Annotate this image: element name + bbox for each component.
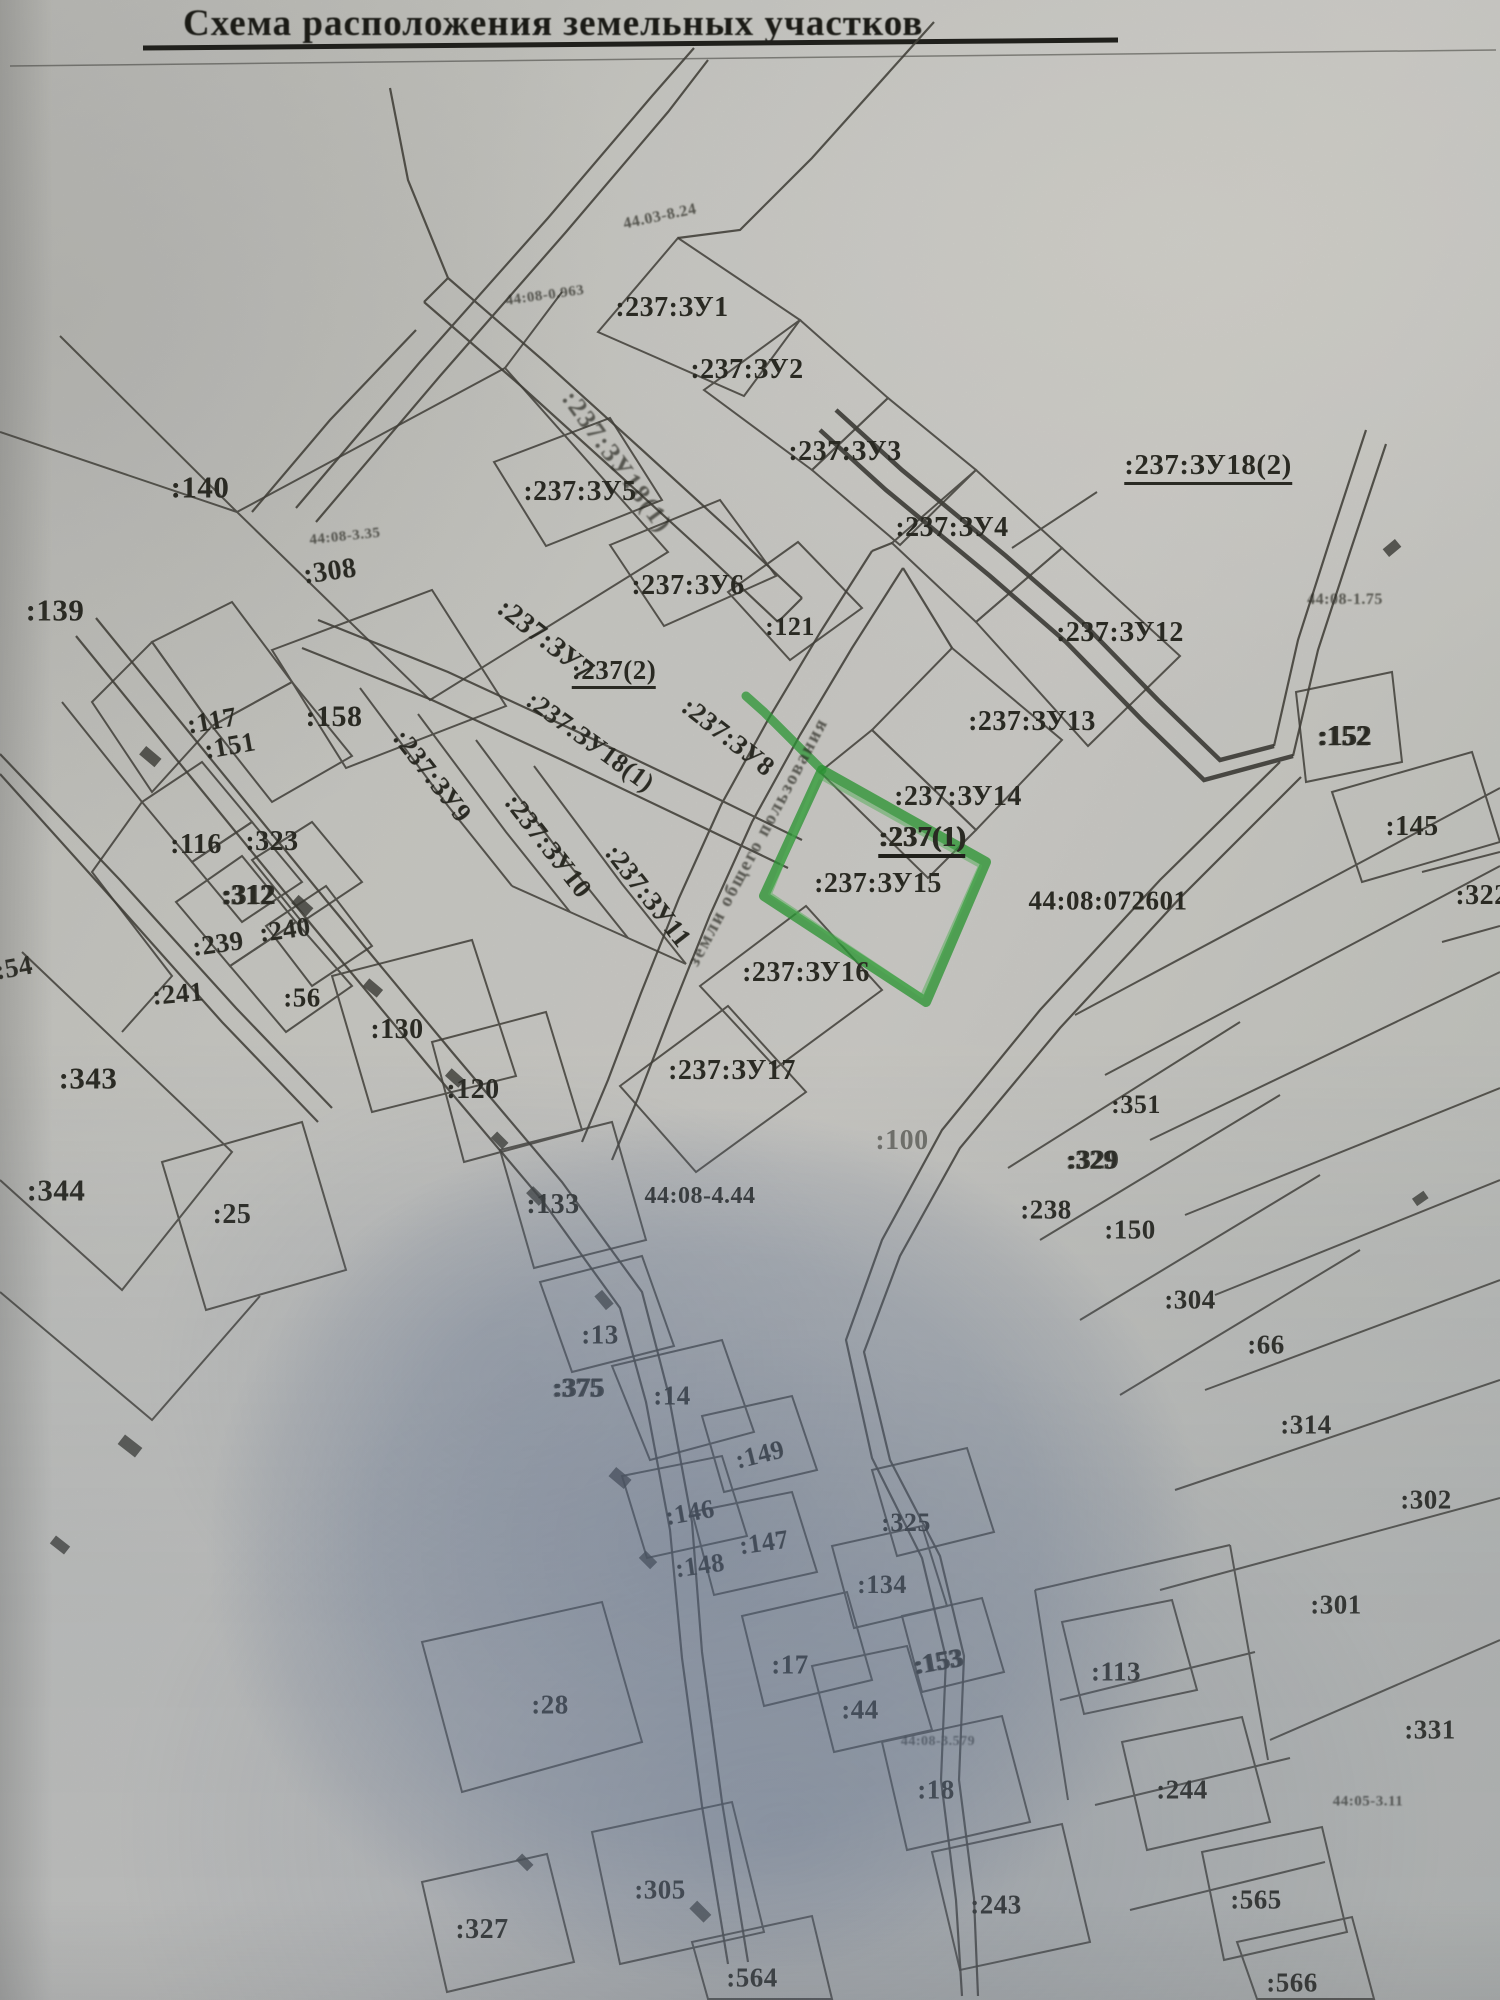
map-labels: 44.03-8.2444:08-0.963:237:ЗУ1:237:ЗУ2:23…	[0, 0, 1500, 2000]
parcel-label: :149	[733, 1436, 787, 1473]
parcel-label: :308	[302, 554, 359, 589]
cadastral-map-photo: Схема расположения земельных участков	[0, 0, 1500, 2000]
parcel-label: :134	[857, 1572, 907, 1598]
parcel-label: 44:08-4.44	[645, 1184, 756, 1208]
parcel-label: :237:ЗУ12	[1056, 619, 1184, 647]
parcel-label: 44:08-0.963	[505, 283, 586, 309]
parcel-label: :237:ЗУ8	[677, 693, 780, 782]
parcel-label: :13	[581, 1322, 619, 1349]
parcel-label: :17	[771, 1652, 809, 1679]
parcel-label: :344	[27, 1175, 86, 1206]
parcel-label: 44:08:072601	[1029, 888, 1188, 915]
parcel-label: :237:ЗУ14	[894, 783, 1022, 811]
parcel-label: :241	[151, 978, 205, 1009]
parcel-label: :54	[0, 951, 35, 984]
parcel-label: :130	[370, 1016, 423, 1044]
parcel-label: :237:ЗУ18(1)	[557, 386, 677, 538]
parcel-label: :237:ЗУ15	[814, 870, 942, 898]
parcel-label: :237:ЗУ3	[788, 438, 901, 466]
parcel-label: :120	[446, 1076, 499, 1104]
parcel-label: :237:ЗУ18(2)	[1124, 451, 1292, 485]
parcel-label: :305	[634, 1877, 686, 1904]
parcel-label: :146	[663, 1496, 716, 1530]
parcel-label: :18	[917, 1777, 955, 1804]
parcel-label: :237:ЗУ1	[615, 294, 728, 322]
parcel-label: :240	[258, 913, 313, 947]
parcel-label: :565	[1230, 1887, 1282, 1914]
parcel-label: :327	[455, 1916, 508, 1944]
parcel-label: :351	[1111, 1092, 1161, 1118]
parcel-label: :239	[191, 927, 246, 961]
parcel-label: :237:ЗУ16	[742, 959, 870, 987]
parcel-label: :28	[531, 1692, 569, 1719]
parcel-label: :237:ЗУ10	[499, 789, 596, 903]
parcel-label: :237(2)	[572, 657, 656, 689]
parcel-label: :237:ЗУ17	[668, 1057, 796, 1085]
parcel-label: :329	[1066, 1147, 1118, 1174]
parcel-label: :25	[213, 1201, 252, 1229]
parcel-label: :145	[1385, 813, 1438, 841]
parcel-label: :343	[59, 1063, 118, 1094]
parcel-label: :237:ЗУ2	[690, 356, 803, 384]
parcel-label: 44:08-3.579	[901, 1735, 975, 1749]
parcel-label: :564	[726, 1965, 778, 1992]
parcel-label: :237:ЗУ6	[631, 572, 744, 600]
parcel-label: :331	[1404, 1717, 1456, 1744]
parcel-label: :152	[1317, 723, 1370, 751]
parcel-label: :237:ЗУ4	[895, 514, 1008, 542]
parcel-label: :375	[552, 1375, 604, 1402]
parcel-label: :151	[202, 728, 257, 764]
parcel-label: :150	[1104, 1217, 1156, 1244]
parcel-label: :147	[738, 1527, 791, 1560]
parcel-label: :323	[245, 828, 298, 856]
parcel-label: :237(1)	[878, 824, 965, 858]
parcel-label: :566	[1266, 1970, 1318, 1997]
parcel-label: :148	[674, 1550, 727, 1583]
parcel-label: :153	[911, 1645, 964, 1679]
parcel-label: :44	[841, 1697, 879, 1724]
parcel-label: 44.03-8.24	[622, 201, 698, 232]
parcel-label: :116	[170, 831, 222, 859]
parcel-label: :237:ЗУ11	[600, 840, 696, 953]
parcel-label: :237:ЗУ13	[968, 708, 1096, 736]
parcel-label: :100	[875, 1127, 928, 1155]
parcel-label: :312	[221, 882, 274, 910]
parcel-label: 44:08-3.35	[309, 526, 381, 548]
parcel-label: :133	[526, 1191, 579, 1219]
parcel-label: :304	[1164, 1287, 1216, 1314]
parcel-label: :113	[1091, 1659, 1141, 1686]
parcel-label: :237:ЗУ18(1)	[521, 687, 658, 797]
parcel-label: 44:08-1.75	[1307, 592, 1383, 608]
parcel-label: :140	[171, 472, 230, 503]
parcel-label: :139	[26, 595, 85, 626]
parcel-label: :238	[1020, 1197, 1072, 1224]
parcel-label: 44:05-3.11	[1333, 1795, 1403, 1810]
parcel-label: :302	[1400, 1487, 1452, 1514]
parcel-label: :56	[283, 985, 321, 1012]
parcel-label: :314	[1280, 1412, 1332, 1439]
parcel-label: :66	[1247, 1332, 1285, 1359]
parcel-label: :14	[653, 1383, 691, 1410]
parcel-label: :158	[306, 702, 363, 732]
parcel-label: :237:ЗУ9	[388, 725, 477, 828]
parcel-label: :121	[765, 614, 815, 640]
parcel-label: :325	[881, 1510, 931, 1536]
parcel-label: :243	[970, 1892, 1022, 1919]
parcel-label: :244	[1156, 1777, 1208, 1804]
parcel-label: :301	[1310, 1592, 1362, 1619]
parcel-label: :322	[1455, 882, 1500, 910]
